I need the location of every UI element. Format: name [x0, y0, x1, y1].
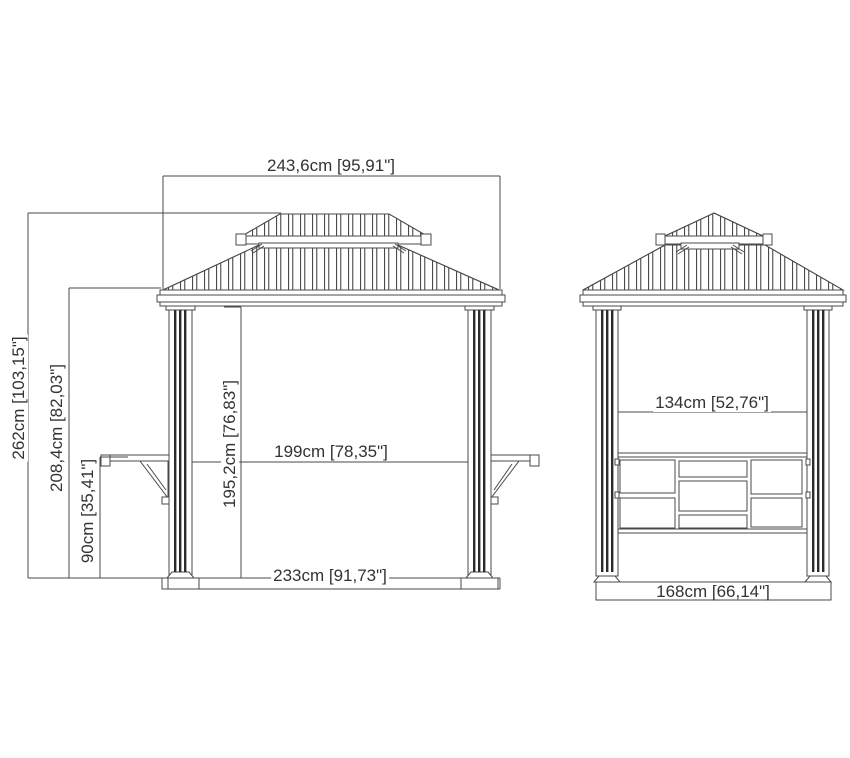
dim-inner-width-label: 199cm [78,35"] [272, 443, 390, 461]
gazebo-line-art [0, 0, 850, 758]
front-shelf-left [101, 455, 169, 504]
front-roof-upper-tier [236, 214, 431, 245]
side-roof-lower-tier [583, 243, 843, 290]
front-cornice [157, 290, 505, 306]
front-post-left [166, 306, 195, 578]
front-base [28, 578, 500, 589]
dim-roof-width-label: 243,6cm [95,91"] [265, 157, 397, 175]
side-roof-upper-tier [656, 213, 772, 245]
dim-total-height-label: 262cm [103,15"] [10, 334, 28, 461]
side-post-left [593, 306, 621, 582]
side-cornice [580, 290, 846, 306]
dim-side-base-width-label: 168cm [66,14"] [654, 583, 772, 601]
front-roof-lower-tier [163, 243, 499, 290]
side-post-right [804, 306, 832, 582]
dim-shelf-height-label: 90cm [35,41"] [79, 457, 97, 565]
side-counter-wall [615, 453, 810, 533]
dim-side-inner-width-label: 134cm [52,76"] [653, 394, 771, 412]
rail-bracket [615, 459, 619, 465]
rail-bracket [806, 459, 810, 465]
technical-drawing-canvas: 243,6cm [95,91"] 262cm [103,15"] 208,4cm… [0, 0, 850, 758]
front-post-right [465, 306, 494, 578]
front-shelf-right [491, 455, 539, 504]
dim-base-width-front-label: 233cm [91,73"] [271, 567, 389, 585]
dim-eave-height-label: 208,4cm [82,03"] [48, 362, 66, 494]
rail-bracket [615, 492, 619, 498]
front-view [28, 214, 539, 589]
dim-shelf-height-lines [100, 457, 128, 578]
rail-bracket [806, 492, 810, 498]
dim-clearance-height-label: 195,2cm [76,83"] [221, 378, 239, 510]
